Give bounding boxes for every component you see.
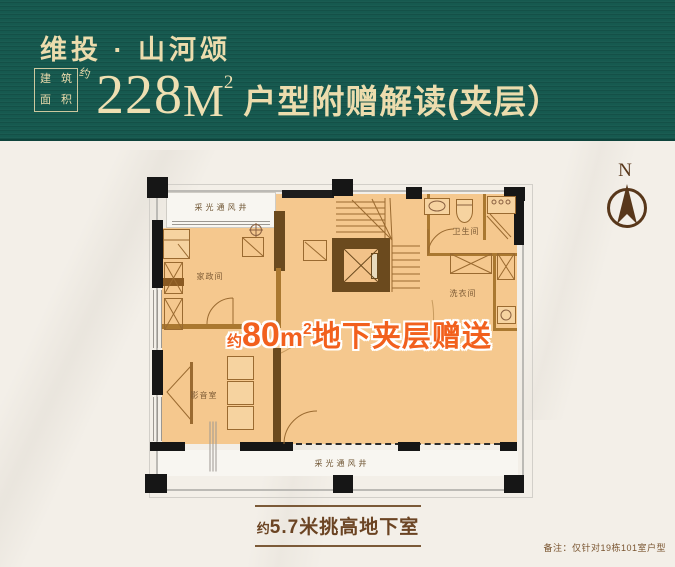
cabinet bbox=[242, 237, 264, 257]
height-callout: 约5.7米挑高地下室 bbox=[255, 505, 421, 547]
gift-unit: m bbox=[280, 322, 303, 352]
wall-segment bbox=[152, 220, 163, 288]
gift-prefix: 约 bbox=[227, 333, 242, 350]
vent-shaft-bottom-label: 采光通风井 bbox=[315, 458, 370, 469]
gift-superscript: 2 bbox=[303, 321, 312, 338]
gift-text: 地下夹层赠送 bbox=[312, 321, 492, 353]
header-banner: 维投 · 山河颂 建 筑 面 积 约 228 M2 户型附赠解读(夹层） bbox=[0, 0, 675, 141]
poster: 维投 · 山河颂 建 筑 面 积 约 228 M2 户型附赠解读(夹层） N 采… bbox=[0, 0, 675, 567]
compass-north-label: N bbox=[607, 160, 643, 182]
wall-segment bbox=[398, 442, 420, 451]
area-value: 228 bbox=[96, 72, 183, 120]
window-hatch bbox=[172, 221, 270, 227]
column bbox=[145, 474, 167, 493]
wall bbox=[493, 328, 517, 331]
stamp-char: 建 bbox=[40, 74, 51, 85]
room-label-housekeeping: 家政间 bbox=[197, 271, 224, 282]
wall bbox=[282, 190, 334, 198]
room-label-laundry: 洗衣间 bbox=[450, 288, 477, 299]
column bbox=[504, 475, 524, 493]
shower-fixture bbox=[487, 196, 516, 214]
window-hatch bbox=[153, 290, 162, 348]
sofa bbox=[227, 356, 254, 380]
room-label-theater: 影音室 bbox=[191, 390, 218, 401]
area-stamp: 建 筑 面 积 约 bbox=[34, 68, 78, 112]
stamp-char: 面 bbox=[40, 95, 51, 106]
wall-segment bbox=[152, 350, 163, 395]
storage-void bbox=[450, 253, 492, 274]
compass-icon bbox=[607, 188, 647, 228]
height-prefix: 约 bbox=[257, 521, 270, 536]
bed bbox=[163, 229, 190, 259]
wall bbox=[493, 253, 496, 330]
column bbox=[332, 179, 353, 196]
vent-shaft-top-label: 采光通风井 bbox=[195, 202, 250, 213]
column bbox=[406, 187, 422, 199]
wall bbox=[274, 211, 285, 271]
column bbox=[147, 177, 168, 198]
wall-segment bbox=[240, 442, 293, 451]
headline-subtitle: 户型附赠解读(夹层） bbox=[243, 85, 561, 118]
window-hatch bbox=[153, 397, 162, 441]
room-label-bathroom: 卫生间 bbox=[453, 226, 480, 237]
brand-title: 维投 · 山河颂 bbox=[40, 28, 231, 67]
height-text: 5.7米挑高地下室 bbox=[270, 517, 419, 538]
gift-value: 80 bbox=[242, 316, 280, 354]
wall-segment bbox=[500, 442, 517, 451]
column bbox=[333, 475, 353, 493]
stamp-char: 筑 bbox=[61, 74, 72, 85]
window-hatch bbox=[210, 422, 217, 472]
closet bbox=[164, 298, 183, 330]
headline-row: 建 筑 面 积 约 228 M2 户型附赠解读(夹层） bbox=[34, 68, 561, 120]
washer bbox=[497, 306, 516, 324]
elevator-door bbox=[371, 253, 378, 279]
area-superscript: 2 bbox=[224, 72, 234, 93]
wall bbox=[483, 194, 486, 240]
wall bbox=[273, 348, 281, 444]
area-unit: M2 bbox=[183, 75, 233, 120]
stamp-suffix: 约 bbox=[78, 68, 92, 82]
stamp-char: 积 bbox=[61, 95, 72, 106]
wall-segment bbox=[150, 442, 185, 451]
vanity-sink bbox=[424, 198, 450, 215]
storage-void bbox=[497, 253, 515, 280]
sofa bbox=[227, 406, 254, 430]
toilet bbox=[456, 199, 473, 223]
table bbox=[303, 240, 327, 261]
gift-area-callout: 约80m2地下夹层赠送 bbox=[227, 313, 492, 355]
shelf bbox=[163, 278, 184, 286]
sofa bbox=[227, 381, 254, 405]
footnote: 备注：仅针对19栋101室户型 bbox=[543, 541, 666, 554]
